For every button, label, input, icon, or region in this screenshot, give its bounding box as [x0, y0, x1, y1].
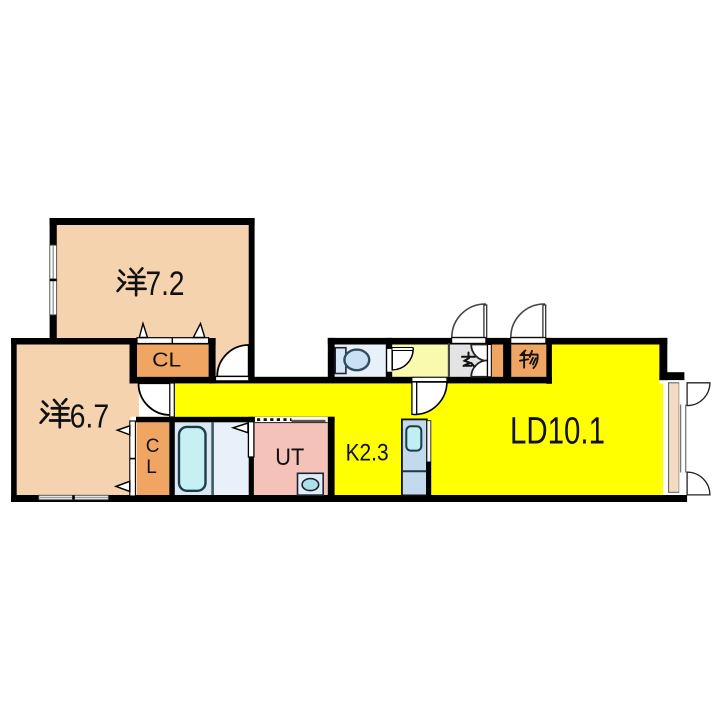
svg-text:K2.3: K2.3 — [346, 440, 389, 467]
svg-text:7.2: 7.2 — [146, 265, 185, 303]
svg-text:LD10.1: LD10.1 — [510, 411, 605, 453]
svg-text:6.7: 6.7 — [70, 397, 110, 434]
svg-text:UT: UT — [275, 444, 304, 471]
svg-text:CL: CL — [152, 349, 181, 372]
svg-text:C: C — [146, 436, 160, 457]
svg-text:L: L — [146, 457, 157, 478]
